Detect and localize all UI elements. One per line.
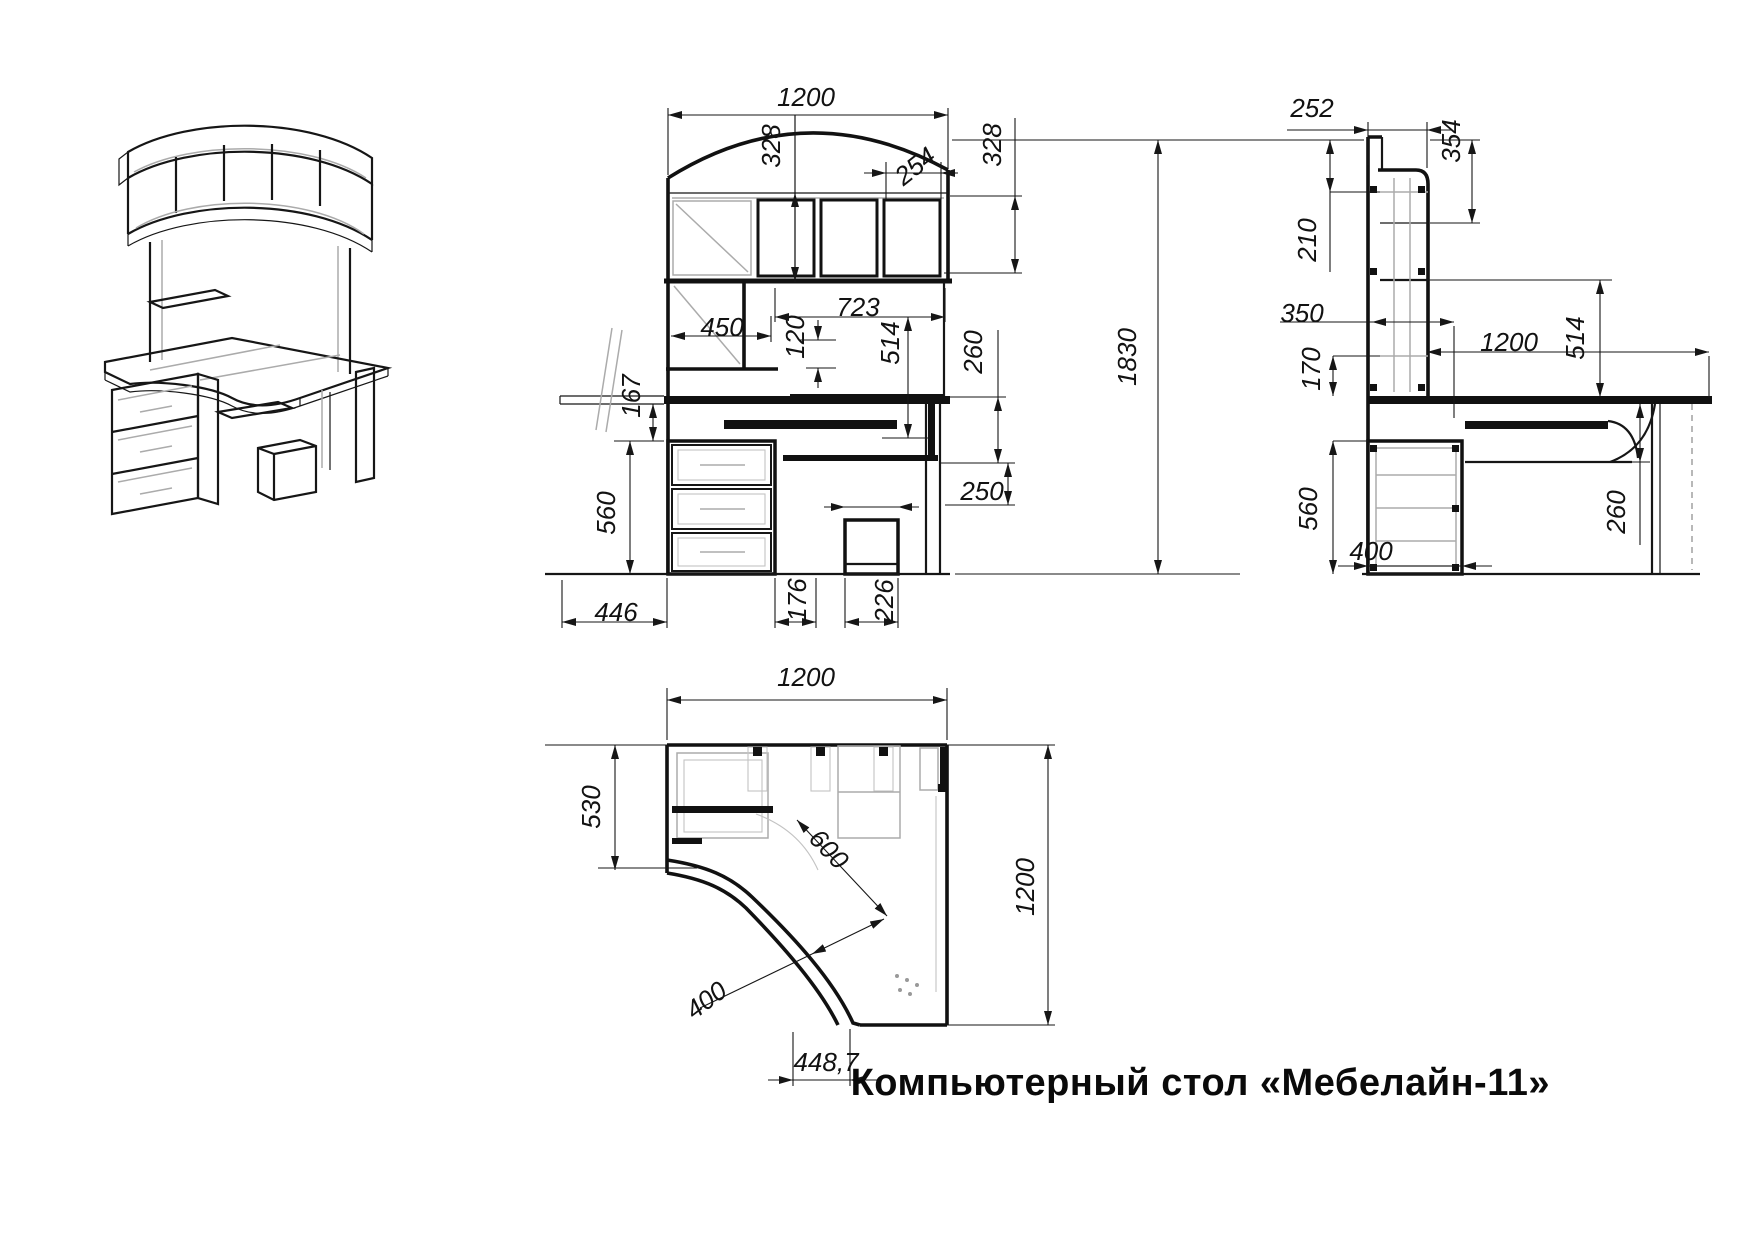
dim-front-width: 1200 bbox=[777, 82, 835, 112]
dim-front-opening-h: 514 bbox=[875, 321, 905, 364]
dim-side-hutch-h: 354 bbox=[1436, 119, 1466, 162]
dim-front-hutch-right-h: 328 bbox=[977, 123, 1007, 167]
dim-plan-depth: 1200 bbox=[1010, 858, 1040, 916]
dim-front-opening-w: 723 bbox=[836, 292, 880, 322]
dim-front-drawer-h: 560 bbox=[591, 491, 621, 535]
plan-view: 1200 530 600 400 1200 448,7 bbox=[545, 662, 1055, 1086]
dim-side-shelf-h: 210 bbox=[1292, 218, 1322, 263]
side-view: 252 354 210 350 170 1200 514 260 560 400 bbox=[1280, 93, 1712, 574]
blueprint-sheet: 1200 328 328 254 450 120 723 514 260 250 bbox=[0, 0, 1754, 1240]
dim-side-under-h: 514 bbox=[1560, 316, 1590, 359]
drawing-title: Компьютерный стол «Мебелайн-11» bbox=[560, 1062, 1550, 1105]
dim-front-shelf-drop: 260 bbox=[958, 330, 988, 375]
dim-side-desk-depth: 1200 bbox=[1480, 327, 1538, 357]
dim-front-niche-w: 450 bbox=[700, 312, 744, 342]
front-view: 1200 328 328 254 450 120 723 514 260 250 bbox=[545, 82, 1364, 628]
dim-front-total-h: 1830 bbox=[1112, 328, 1142, 386]
dim-plan-width: 1200 bbox=[777, 662, 835, 692]
dim-plan-diag-inner: 600 bbox=[803, 823, 855, 875]
dim-side-tray-drop: 170 bbox=[1296, 347, 1326, 391]
blueprint-drawing: 1200 328 328 254 450 120 723 514 260 250 bbox=[0, 0, 1754, 1240]
dim-front-hutch-left-h: 328 bbox=[756, 124, 786, 168]
dim-front-niche-offset: 120 bbox=[780, 315, 810, 359]
dim-front-tray-gap: 167 bbox=[616, 373, 646, 418]
dim-front-drawer-w: 446 bbox=[594, 597, 638, 627]
dim-plan-left-depth: 530 bbox=[576, 785, 606, 829]
dim-side-drawer-h: 560 bbox=[1293, 487, 1323, 531]
dim-front-cpu-w: 226 bbox=[869, 579, 899, 624]
dim-plan-diag-outer: 400 bbox=[680, 975, 733, 1025]
dim-front-box-h: 250 bbox=[959, 476, 1004, 506]
dim-front-gap-w: 176 bbox=[782, 578, 812, 622]
dim-side-top-depth: 252 bbox=[1289, 93, 1334, 123]
isometric-view bbox=[105, 126, 388, 514]
dim-side-edge-h: 260 bbox=[1601, 490, 1631, 535]
dim-side-tray-depth: 350 bbox=[1280, 298, 1324, 328]
dim-side-cabinet-depth: 400 bbox=[1349, 536, 1393, 566]
